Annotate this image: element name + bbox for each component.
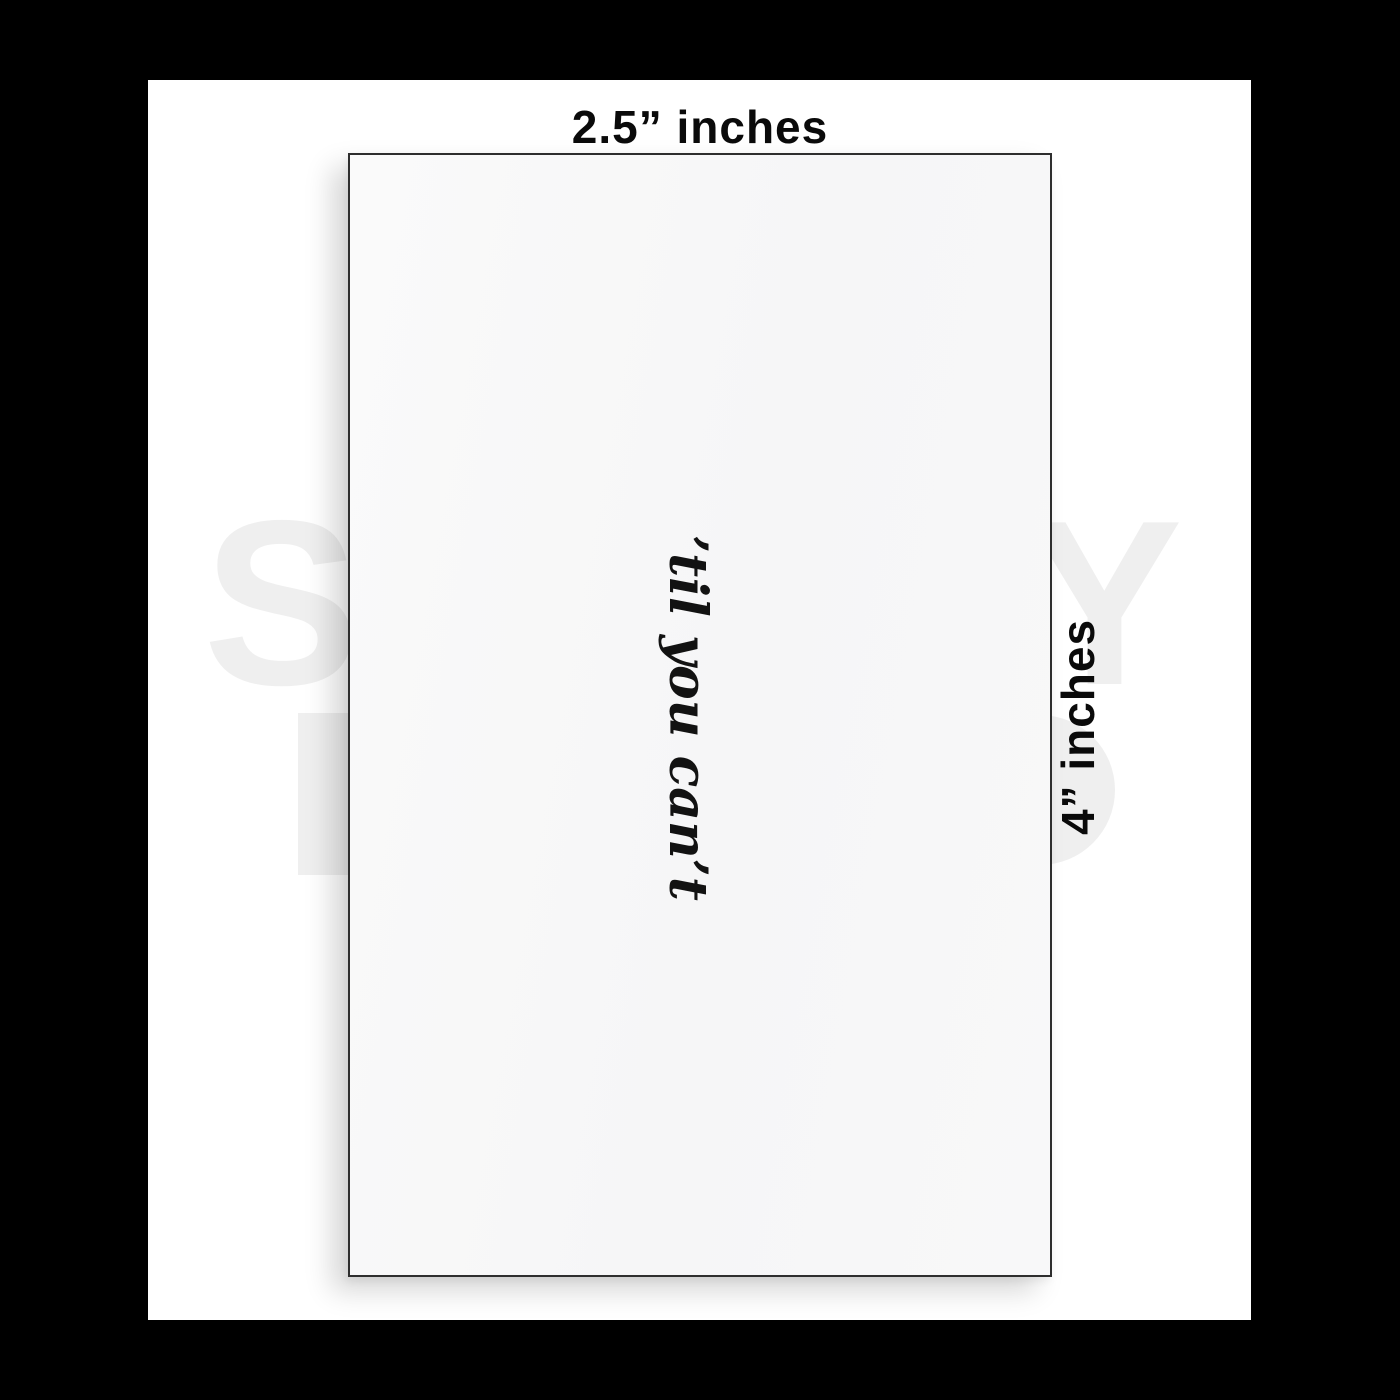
height-dimension-label: 4” inches <box>1053 577 1103 877</box>
sticker-card: ’til you can’t <box>348 153 1052 1277</box>
width-dimension-label: 2.5” inches <box>348 100 1052 154</box>
watermark-letter-left: S <box>203 485 360 720</box>
watermark-fragment-bar <box>298 713 350 875</box>
sticker-quote-text: ’til you can’t <box>642 503 732 933</box>
image-frame: S Y 2.5” inches 4” inches ’til you can’t <box>0 0 1400 1400</box>
mockup-stage: S Y 2.5” inches 4” inches ’til you can’t <box>148 80 1251 1320</box>
